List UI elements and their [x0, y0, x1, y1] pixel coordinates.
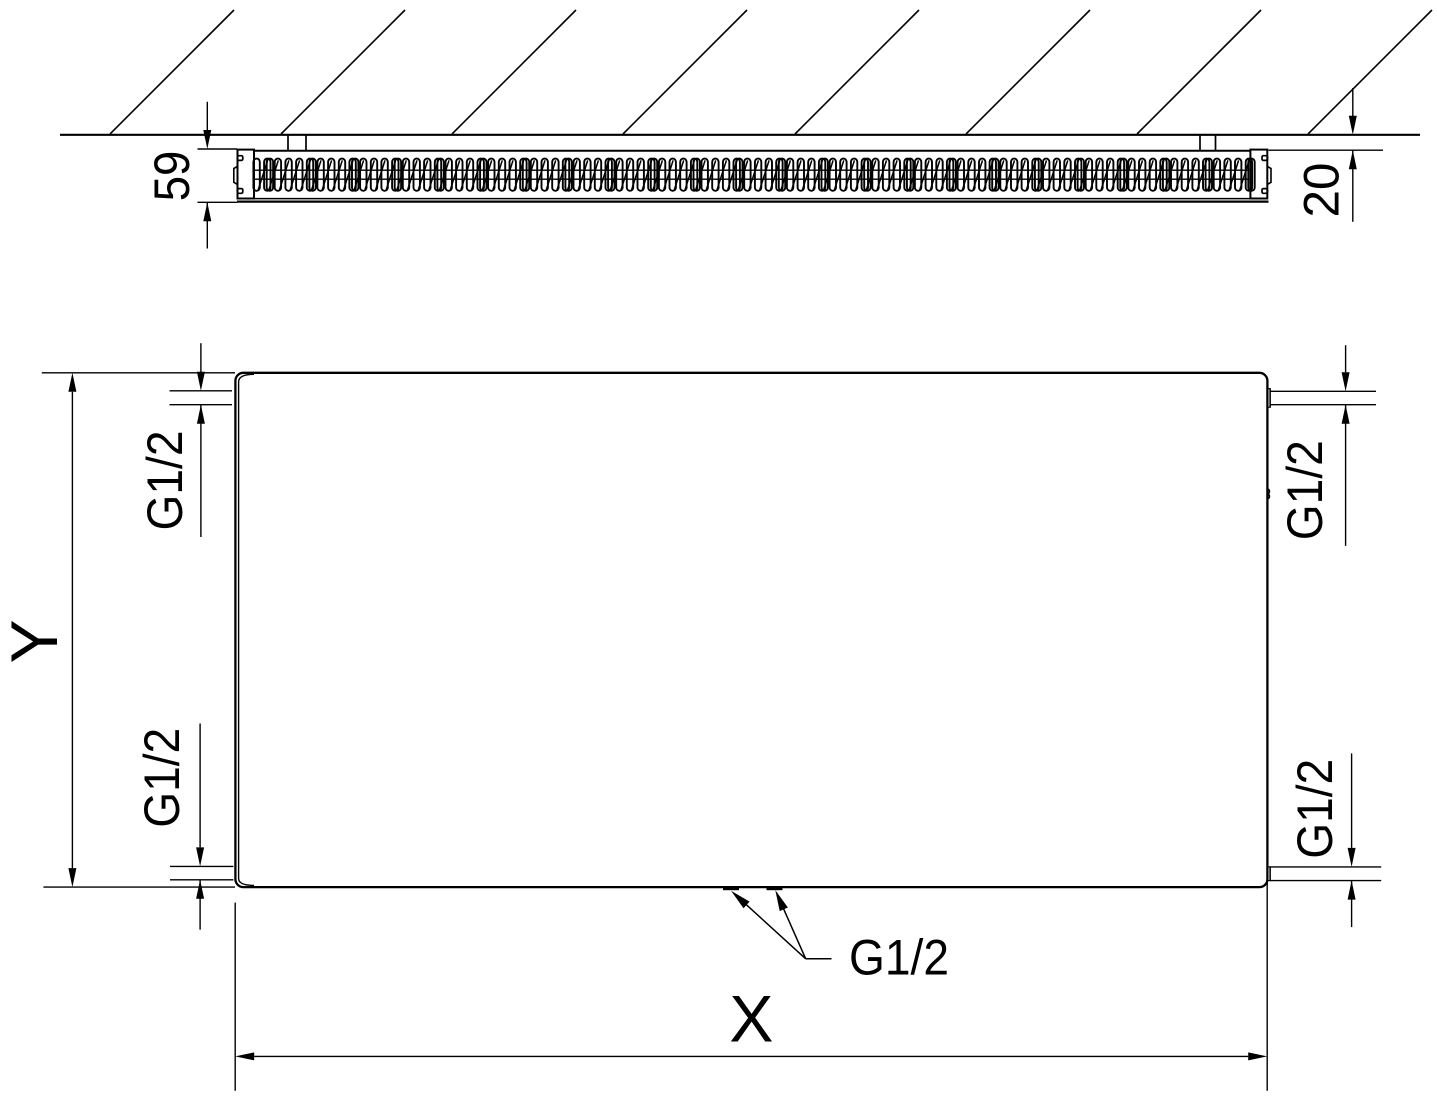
- svg-text:G1/2: G1/2: [1277, 440, 1333, 540]
- svg-text:G1/2: G1/2: [134, 728, 190, 828]
- svg-text:X: X: [729, 982, 773, 1056]
- svg-text:Y: Y: [0, 619, 71, 663]
- svg-text:G1/2: G1/2: [137, 431, 193, 531]
- svg-text:G1/2: G1/2: [1287, 759, 1343, 859]
- svg-text:59: 59: [144, 151, 200, 202]
- svg-text:20: 20: [1294, 163, 1350, 218]
- svg-text:G1/2: G1/2: [849, 930, 949, 986]
